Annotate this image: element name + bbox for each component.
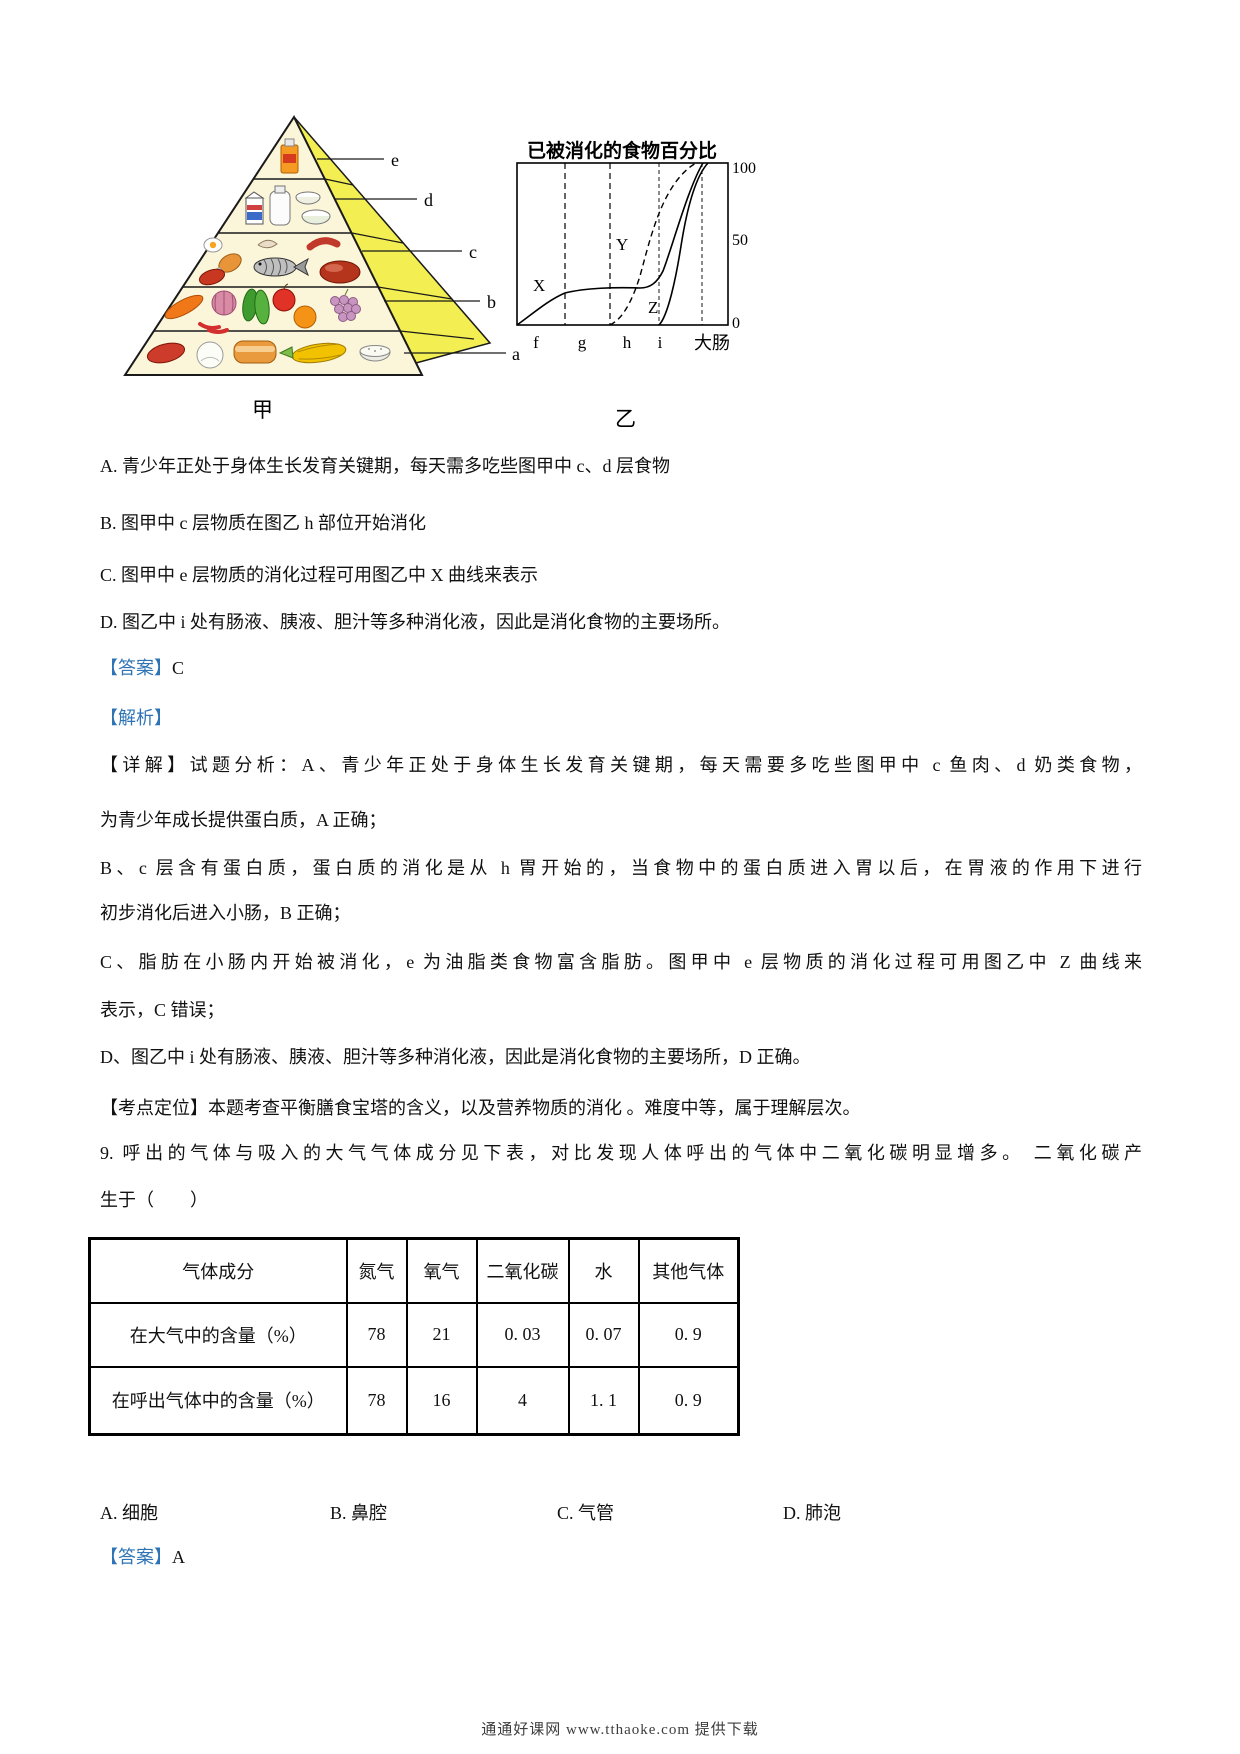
table-row: 在呼出气体中的含量（%） 78 16 4 1. 1 0. 9 xyxy=(90,1367,739,1435)
layer-label-c: c xyxy=(469,242,477,262)
digestion-chart-svg: 已被消化的食物百分比 X Y Z 100 50 0 f xyxy=(500,128,760,433)
header-cell: 水 xyxy=(569,1239,639,1303)
q8-detail-line-3: B、c 层含有蛋白质，蛋白质的消化是从 h 胃开始的，当食物中的蛋白质进入胃以后… xyxy=(100,857,1142,879)
bowl-icon xyxy=(296,192,320,204)
food-pyramid-svg: e d c b a 甲 xyxy=(112,95,527,430)
curve-Z xyxy=(659,163,708,325)
xlabel-g: g xyxy=(578,333,587,352)
q8-answer-value: C xyxy=(172,658,184,678)
chart-title: 已被消化的食物百分比 xyxy=(527,139,717,162)
table-cell: 0. 07 xyxy=(569,1303,639,1367)
table-row: 在大气中的含量（%） 78 21 0. 03 0. 07 0. 9 xyxy=(90,1303,739,1367)
curve-label-x: X xyxy=(533,276,545,295)
q9-option-b: B. 鼻腔 xyxy=(330,1499,387,1525)
q9-stem-line-2: 生于（ ） xyxy=(100,1189,208,1211)
bowl-icon xyxy=(302,210,330,224)
ytick-50: 50 xyxy=(732,232,748,249)
q8-detail-line-6: 表示，C 错误； xyxy=(100,999,225,1021)
q9-option-a: A. 细胞 xyxy=(100,1499,158,1525)
page-footer: 通通好课网 www.tthaoke.com 提供下载 xyxy=(0,1718,1240,1739)
table-cell: 0. 03 xyxy=(477,1303,569,1367)
q8-answer-line: 【答案】C xyxy=(100,657,184,679)
food-pyramid-figure: e d c b a 甲 xyxy=(112,95,527,430)
layer-label-d: d xyxy=(424,190,433,210)
gas-composition-table: 气体成分 氮气 氧气 二氧化碳 水 其他气体 在大气中的含量（%） 78 21 … xyxy=(88,1237,740,1436)
layer-label-e: e xyxy=(391,150,399,170)
bread-icon xyxy=(234,341,276,363)
digestion-chart-figure: 已被消化的食物百分比 X Y Z 100 50 0 f xyxy=(500,128,760,433)
milk-carton-icon xyxy=(246,192,263,224)
q9-stem-line-1: 9. 呼出的气体与吸入的大气气体成分见下表，对比发现人体呼出的气体中二氧化碳明显… xyxy=(100,1142,1142,1164)
header-cell: 二氧化碳 xyxy=(477,1239,569,1303)
pyramid-caption: 甲 xyxy=(252,398,273,422)
q8-detail-line-7: D、图乙中 i 处有肠液、胰液、胆汁等多种消化液，因此是消化食物的主要场所，D … xyxy=(100,1046,811,1068)
q8-option-b: B. 图甲中 c 层物质在图乙 h 部位开始消化 xyxy=(100,512,426,534)
chart-caption: 乙 xyxy=(615,407,636,431)
ytick-100: 100 xyxy=(732,160,756,177)
chart-region-boundaries xyxy=(565,163,610,325)
onion-icon xyxy=(212,291,236,315)
table-cell: 21 xyxy=(407,1303,477,1367)
analysis-label: 【解析】 xyxy=(100,708,172,728)
answer-label: 【答案】 xyxy=(100,658,172,678)
xlabel-dachang: 大肠 xyxy=(694,333,730,353)
egg-icon xyxy=(204,238,222,252)
milk-bottle-icon xyxy=(270,186,290,225)
q8-option-a: A. 青少年正处于身体生长发育关键期，每天需多吃些图甲中 c、d 层食物 xyxy=(100,455,670,477)
q8-detail-line-5: C、脂肪在小肠内开始被消化，e 为油脂类食物富含脂肪。图甲中 e 层物质的消化过… xyxy=(100,951,1142,973)
xlabel-i: i xyxy=(658,333,663,352)
orange-icon xyxy=(294,306,316,328)
table-cell: 16 xyxy=(407,1367,477,1435)
q8-analysis-line: 【解析】 xyxy=(100,707,172,729)
curve-label-z: Z xyxy=(648,298,658,317)
table-cell: 78 xyxy=(347,1367,407,1435)
curve-label-y: Y xyxy=(616,235,628,254)
table-cell: 0. 9 xyxy=(639,1367,739,1435)
table-cell: 78 xyxy=(347,1303,407,1367)
answer-label: 【答案】 xyxy=(100,1547,172,1567)
header-cell: 其他气体 xyxy=(639,1239,739,1303)
steamed-bun-icon xyxy=(197,342,223,368)
table-cell: 在大气中的含量（%） xyxy=(90,1303,347,1367)
q8-kaodian-line: 【考点定位】本题考查平衡膳食宝塔的含义，以及营养物质的消化 。难度中等，属于理解… xyxy=(100,1097,861,1119)
q8-detail-line-4: 初步消化后进入小肠，B 正确； xyxy=(100,902,351,924)
q9-option-d: D. 肺泡 xyxy=(783,1499,841,1525)
xlabel-h: h xyxy=(623,333,632,352)
table-header-row: 气体成分 氮气 氧气 二氧化碳 水 其他气体 xyxy=(90,1239,739,1303)
ytick-0: 0 xyxy=(732,315,740,332)
table-cell: 0. 9 xyxy=(639,1303,739,1367)
header-cell: 氧气 xyxy=(407,1239,477,1303)
exam-page: e d c b a 甲 已被消化的食物百分比 X xyxy=(0,0,1240,1754)
layer-label-b: b xyxy=(487,292,496,312)
q9-answer-line: 【答案】A xyxy=(100,1546,185,1568)
rice-bowl-icon xyxy=(360,346,390,362)
header-cell: 气体成分 xyxy=(90,1239,347,1303)
q9-option-c: C. 气管 xyxy=(557,1499,614,1525)
q8-option-d: D. 图乙中 i 处有肠液、胰液、胆汁等多种消化液，因此是消化食物的主要场所。 xyxy=(100,611,730,633)
table-cell: 1. 1 xyxy=(569,1367,639,1435)
header-cell: 氮气 xyxy=(347,1239,407,1303)
xlabel-f: f xyxy=(533,333,539,352)
q8-option-c: C. 图甲中 e 层物质的消化过程可用图乙中 X 曲线来表示 xyxy=(100,564,538,586)
q8-detail-line-2: 为青少年成长提供蛋白质，A 正确； xyxy=(100,809,387,831)
table-cell: 4 xyxy=(477,1367,569,1435)
roast-meat-icon xyxy=(320,261,360,283)
q8-detail-line-1: 【详解】试题分析：A、青少年正处于身体生长发育关键期，每天需要多吃些图甲中 c … xyxy=(100,754,1142,776)
table-cell: 在呼出气体中的含量（%） xyxy=(90,1367,347,1435)
q9-answer-value: A xyxy=(172,1547,185,1567)
